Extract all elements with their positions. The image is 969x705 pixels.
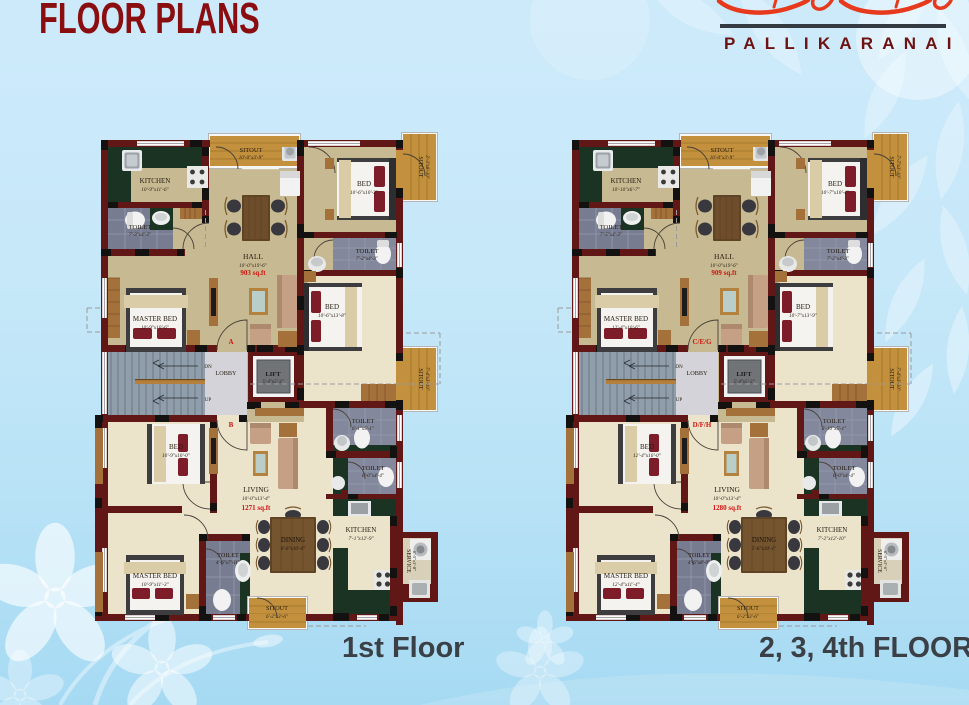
svg-text:MASTER BED: MASTER BED — [133, 572, 177, 580]
svg-text:BED: BED — [796, 303, 810, 311]
svg-text:6'-2"x3'-6": 6'-2"x3'-6" — [737, 615, 760, 620]
svg-text:10'-9"x11'-6": 10'-9"x11'-6" — [141, 187, 169, 193]
svg-text:TOILET: TOILET — [352, 418, 375, 425]
svg-text:7'-2"x12'-10": 7'-2"x12'-10" — [818, 536, 847, 542]
svg-text:10'-7"x10'-4": 10'-7"x10'-4" — [821, 189, 850, 196]
svg-text:7'-4"x3'-10": 7'-4"x3'-10" — [895, 367, 900, 391]
svg-text:SITOUT: SITOUT — [240, 147, 263, 154]
svg-text:1280 sq.ft: 1280 sq.ft — [713, 504, 742, 512]
svg-text:6'-0"x4'-4": 6'-0"x4'-4" — [362, 474, 385, 479]
svg-text:LOBBY: LOBBY — [687, 370, 709, 377]
svg-text:KITCHEN: KITCHEN — [817, 526, 848, 534]
svg-text:TOILET: TOILET — [827, 248, 850, 255]
svg-text:10'-0"x3'-9": 10'-0"x3'-9" — [239, 156, 264, 161]
svg-text:MASTER BED: MASTER BED — [133, 315, 177, 323]
svg-text:B: B — [229, 421, 234, 429]
svg-text:6'-5"x3'-8": 6'-5"x3'-8" — [412, 551, 417, 571]
svg-text:10'-7"x13'-9": 10'-7"x13'-9" — [789, 313, 818, 319]
svg-text:6'-5"x3'-6": 6'-5"x3'-6" — [883, 551, 888, 571]
svg-text:BED: BED — [357, 180, 371, 188]
svg-text:5'-4"x5'-3": 5'-4"x5'-3" — [734, 380, 756, 385]
svg-text:TOILET: TOILET — [362, 465, 385, 472]
svg-text:SITOUT: SITOUT — [266, 605, 288, 612]
svg-text:TOILET: TOILET — [356, 248, 379, 255]
svg-text:6'-1"x5'-1": 6'-1"x5'-1" — [352, 427, 375, 432]
svg-text:SERVICE: SERVICE — [876, 549, 882, 573]
svg-text:A: A — [228, 338, 233, 346]
svg-text:SITOUT: SITOUT — [888, 156, 894, 178]
svg-text:12'-4"x10'-6": 12'-4"x10'-6" — [612, 324, 641, 331]
svg-text:SITOUT: SITOUT — [417, 156, 423, 178]
svg-text:C/E/G: C/E/G — [692, 338, 712, 346]
svg-text:7'-7"x3'-10": 7'-7"x3'-10" — [895, 155, 900, 179]
svg-text:10'-0"x13'-4": 10'-0"x13'-4" — [713, 495, 742, 502]
svg-text:7'-1"x12'-9": 7'-1"x12'-9" — [348, 536, 374, 542]
svg-text:MASTER BED: MASTER BED — [604, 315, 648, 323]
svg-text:7'-5"x4'-3": 7'-5"x4'-3" — [600, 233, 623, 238]
svg-text:KITCHEN: KITCHEN — [346, 526, 377, 534]
svg-text:903 sq.ft: 903 sq.ft — [240, 269, 266, 277]
svg-text:6'-2"x3'-6": 6'-2"x3'-6" — [266, 615, 289, 620]
svg-text:UP: UP — [205, 397, 212, 403]
svg-text:3'-3"x8'-10": 3'-3"x8'-10" — [424, 155, 429, 179]
svg-text:SERVICE: SERVICE — [405, 549, 411, 573]
svg-text:6'-10"x5'-1": 6'-10"x5'-1" — [822, 427, 847, 432]
svg-text:4'-6"x7'-11": 4'-6"x7'-11" — [216, 561, 241, 566]
svg-text:UP: UP — [676, 397, 683, 403]
svg-text:SITOUT: SITOUT — [888, 368, 894, 390]
svg-text:DN: DN — [675, 364, 683, 370]
svg-text:SITOUT: SITOUT — [711, 147, 734, 154]
svg-text:10'-9"x10'-0": 10'-9"x10'-0" — [162, 453, 191, 459]
svg-text:7'-3"x4'-3": 7'-3"x4'-3" — [129, 233, 152, 238]
svg-text:TOILET: TOILET — [833, 465, 856, 472]
svg-text:5'-4"x5'-3": 5'-4"x5'-3" — [263, 380, 285, 385]
svg-text:7'-2"x4'-3": 7'-2"x4'-3" — [827, 257, 850, 262]
svg-text:LIVING: LIVING — [714, 485, 740, 494]
svg-text:909 sq.ft: 909 sq.ft — [711, 269, 737, 277]
svg-text:TOILET: TOILET — [129, 224, 152, 231]
svg-text:HALL: HALL — [243, 252, 263, 261]
svg-text:DN: DN — [204, 364, 212, 370]
svg-text:TOILET: TOILET — [823, 418, 846, 425]
svg-text:MASTER BED: MASTER BED — [604, 572, 648, 580]
svg-text:10'-10"x6'-7": 10'-10"x6'-7" — [612, 187, 641, 193]
svg-text:BED: BED — [640, 443, 654, 451]
svg-text:10'-0"x13'-4": 10'-0"x13'-4" — [242, 495, 271, 502]
svg-text:DINING: DINING — [281, 537, 305, 544]
svg-text:12'-4"x10'-0": 12'-4"x10'-0" — [633, 452, 662, 459]
svg-text:1271 sq.ft: 1271 sq.ft — [242, 504, 271, 512]
svg-text:LIVING: LIVING — [243, 485, 269, 494]
svg-text:4'-6"x8'-0": 4'-6"x8'-0" — [688, 561, 711, 566]
svg-text:HALL: HALL — [714, 252, 734, 261]
svg-text:5'-6"x10'-1": 5'-6"x10'-1" — [752, 547, 777, 552]
svg-text:LOBBY: LOBBY — [216, 370, 238, 377]
svg-text:7'-2"x4'-3": 7'-2"x4'-3" — [356, 257, 379, 262]
svg-text:12'-4"x11'-4": 12'-4"x11'-4" — [612, 581, 640, 588]
svg-text:10'-9"x11'-3": 10'-9"x11'-3" — [141, 582, 169, 588]
svg-text:7'-4"x3'-10": 7'-4"x3'-10" — [424, 367, 429, 391]
svg-text:10'-0"x3'-9": 10'-0"x3'-9" — [710, 156, 735, 161]
svg-text:TOILET: TOILET — [600, 224, 623, 231]
svg-text:KITCHEN: KITCHEN — [611, 177, 642, 185]
svg-text:10'-6"x13'-8": 10'-6"x13'-8" — [318, 313, 347, 319]
svg-text:BED: BED — [828, 180, 842, 188]
svg-text:6'-6"x10'-0": 6'-6"x10'-0" — [281, 547, 306, 552]
svg-text:TOILET: TOILET — [688, 552, 710, 559]
svg-text:KITCHEN: KITCHEN — [140, 177, 171, 185]
svg-text:10'-9"x10'-6": 10'-9"x10'-6" — [141, 325, 170, 331]
svg-text:D/F/H: D/F/H — [693, 421, 712, 429]
svg-text:TOILET: TOILET — [217, 552, 239, 559]
svg-text:10'-6"x10'-3": 10'-6"x10'-3" — [350, 190, 379, 196]
svg-text:LIFT: LIFT — [265, 371, 281, 378]
svg-text:BED: BED — [325, 303, 339, 311]
svg-text:BED: BED — [169, 443, 183, 451]
svg-text:SITOUT: SITOUT — [737, 605, 759, 612]
svg-text:LIFT: LIFT — [736, 371, 752, 378]
svg-text:DINING: DINING — [752, 537, 776, 544]
svg-text:6'-0"x4'-4": 6'-0"x4'-4" — [833, 474, 856, 479]
svg-text:SITOUT: SITOUT — [417, 368, 423, 390]
